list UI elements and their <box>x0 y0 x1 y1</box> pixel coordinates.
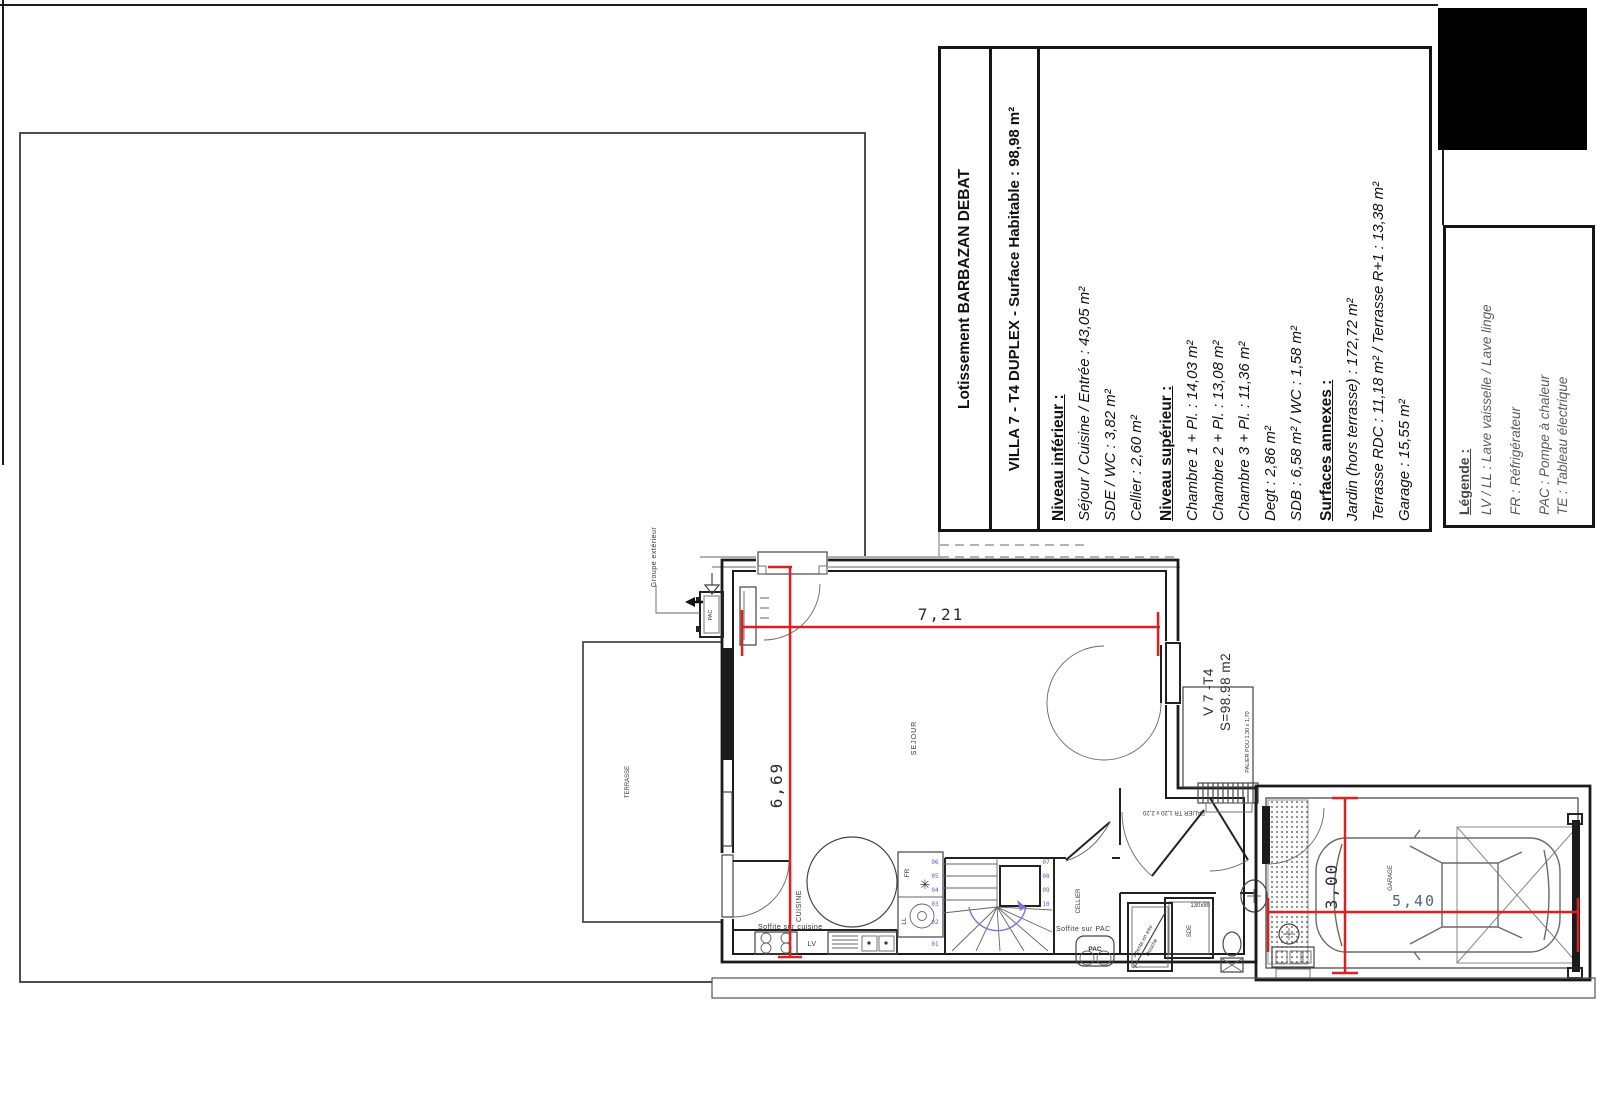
villa-title-column: VILLA 7 - T4 DUPLEX - Surface Habitable … <box>992 49 1037 529</box>
terrasse-area: TERRASSE <box>583 642 722 922</box>
dining-table <box>807 837 897 927</box>
step-number: 08 <box>1042 873 1050 880</box>
dim-sejour-width: 7,21 <box>918 605 965 624</box>
villa-title: VILLA 7 - T4 DUPLEX - Surface Habitable … <box>1006 107 1023 472</box>
pac-indoor-label: PAC <box>1088 946 1102 953</box>
heat-pump-exterior: PAC Groupe extérieur <box>651 527 723 637</box>
legend-heading: Légende : <box>1454 228 1474 515</box>
hatched-path-strip <box>1268 800 1308 964</box>
dim-garage-width: 3,00 <box>1322 863 1341 910</box>
villa-surface-label: S=98.98 m2 <box>1218 653 1233 731</box>
kitchen-area: LV Soffite sur cuisine CUISINE SEJOUR <box>733 721 918 954</box>
garage-label: GARAGE <box>1388 865 1394 891</box>
fridge-label: FR <box>904 868 911 877</box>
surface-line: Terrasse RDC : 11,18 m² / Terrasse R+1 :… <box>1366 49 1392 521</box>
cellier-room: CELLIER Soffite sur PAC PAC <box>1056 822 1114 966</box>
palier-tr-label: PALIER TR 1,20 x 2,20 <box>1142 809 1204 815</box>
red-dimensions: 7,21 6,69 3,00 5,40 <box>742 566 1578 973</box>
step-number: 01 <box>931 941 939 948</box>
section-heading: Surfaces annexes : <box>1314 49 1340 521</box>
surface-line: Jardin (hors terrasse) : 172,72 m² <box>1340 49 1366 521</box>
step-number: 04 <box>931 887 939 894</box>
dim-sejour-height: 6,69 <box>767 762 786 809</box>
cellier-label: CELLIER <box>1076 888 1082 914</box>
dim-garage-length: 5,40 <box>1392 892 1436 910</box>
legend-item: FR : Réfrigérateur <box>1507 228 1524 515</box>
surface-info-table: Lotissement BARBAZAN DEBAT VILLA 7 - T4 … <box>938 46 1432 532</box>
step-number: 05 <box>931 873 939 880</box>
soffit-pac-label: Soffite sur PAC <box>1056 926 1111 933</box>
kitchen-label: CUISINE <box>796 890 803 922</box>
step-number: 06 <box>931 859 939 866</box>
surface-line: SDE / WC : 3,82 m² <box>1098 49 1124 521</box>
step-number: 07 <box>1042 859 1050 866</box>
palier-pou-label: PALIER POU 1,30 x 1,70 <box>1245 711 1251 772</box>
legend-item: PAC : Pompe à chaleur <box>1536 228 1553 515</box>
washer-label: LL <box>901 917 908 925</box>
staircase: 06 05 04 03 02 01 07 08 09 10 <box>931 858 1052 951</box>
surface-line: Séjour / Cuisine / Entrée : 43,05 m² <box>1072 49 1098 521</box>
dishwasher-label: LV <box>807 941 816 948</box>
black-corner-block <box>1438 8 1587 150</box>
surface-line: Garage : 15,55 m² <box>1392 49 1418 521</box>
pac-unit-label: PAC <box>708 610 714 621</box>
legend-panel: Légende : LV / LL : Lave vaisselle / Lav… <box>1443 225 1595 528</box>
door-swings <box>733 584 1161 917</box>
garage-area: GARAGE <box>1256 786 1590 980</box>
surface-line: Degt : 2,86 m² <box>1258 49 1284 521</box>
legend-item: LV / LL : Lave vaisselle / Lave linge <box>1478 228 1495 515</box>
garage-side-door <box>1262 806 1270 864</box>
project-name-column: Lotissement BARBAZAN DEBAT <box>941 49 989 529</box>
snowflake-icon: ✳ <box>920 877 931 892</box>
villa-ref-label: V 7 -T4 <box>1201 668 1216 716</box>
surface-details-column: Niveau inférieur : Séjour / Cuisine / En… <box>1040 49 1429 529</box>
stair-landing <box>1000 866 1040 906</box>
surface-line: Chambre 1 + Pl. : 14,03 m² <box>1180 49 1206 521</box>
surface-line: Cellier : 2,60 m² <box>1124 49 1150 521</box>
section-heading: Niveau inférieur : <box>1046 49 1072 521</box>
terrasse-label: TERRASSE <box>625 766 631 798</box>
car <box>1316 830 1560 960</box>
legend-item: TE : Tableau électrique <box>1554 228 1571 515</box>
step-number: 09 <box>1042 887 1050 894</box>
entrance-hall: PALIER TR 1,20 x 2,20 <box>1122 798 1248 876</box>
shower-size-label: 130x80 <box>1190 903 1210 909</box>
step-number: 10 <box>1042 901 1050 908</box>
step-number: 03 <box>931 901 939 908</box>
garage-door-swing-zone <box>1457 827 1577 963</box>
step-number: 02 <box>931 919 939 926</box>
floorplan-page: TERRASSE <box>0 0 1600 1098</box>
section-heading: Niveau supérieur : <box>1154 49 1180 521</box>
sde-label: SDE <box>1187 925 1193 937</box>
arrow-left-icon <box>685 597 695 607</box>
living-room-label: SEJOUR <box>911 721 918 755</box>
surface-line: SDB : 6,58 m² / WC : 1,58 m² <box>1284 49 1310 521</box>
project-name: Lotissement BARBAZAN DEBAT <box>956 169 974 409</box>
surface-line: Chambre 3 + Pl. : 11,36 m² <box>1232 49 1258 521</box>
groupe-exterieur-label: Groupe extérieur <box>651 527 658 588</box>
surface-line: Chambre 2 + Pl. : 13,08 m² <box>1206 49 1232 521</box>
